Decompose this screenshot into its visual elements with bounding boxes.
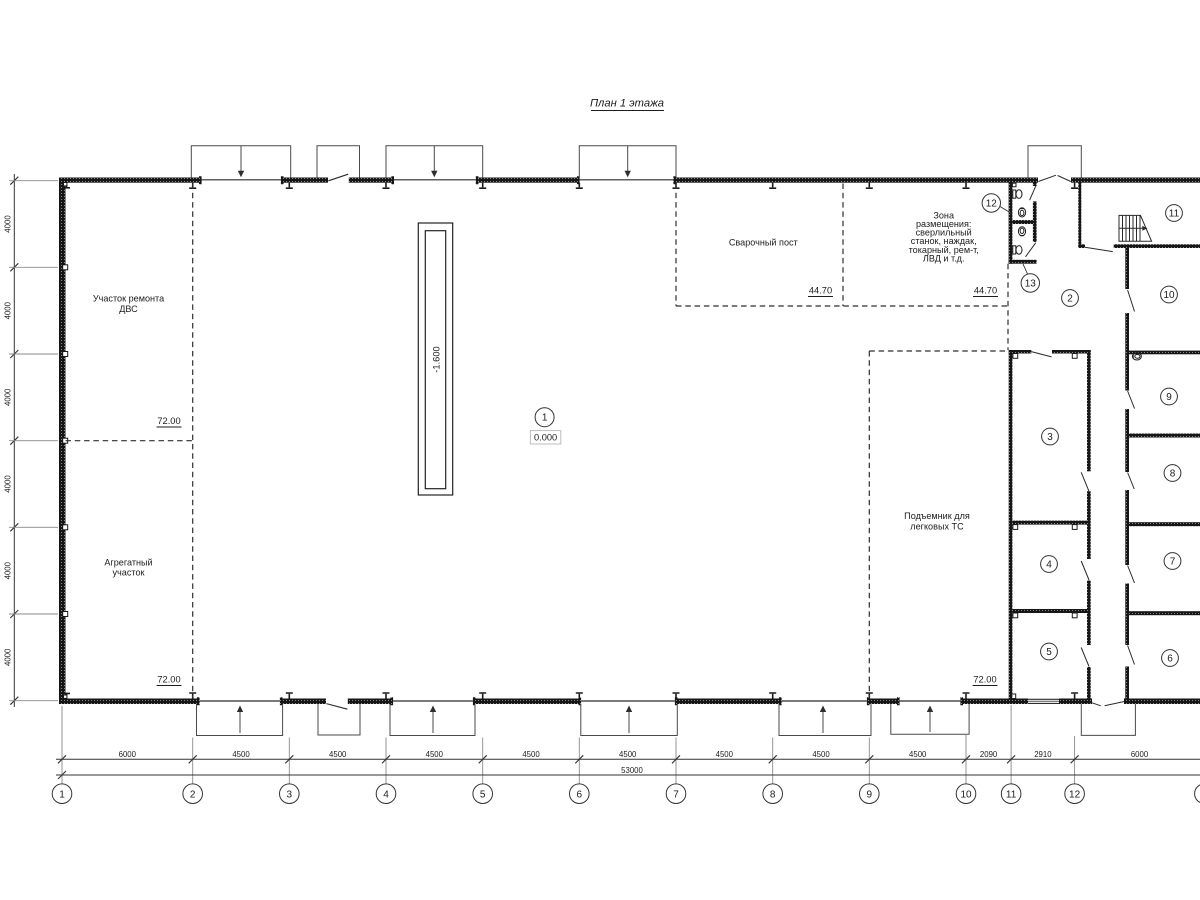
svg-text:11: 11 [1006, 789, 1017, 800]
svg-text:4500: 4500 [716, 750, 734, 759]
svg-text:7: 7 [673, 789, 679, 800]
svg-text:4500: 4500 [426, 750, 444, 759]
svg-text:4: 4 [383, 789, 389, 800]
svg-text:3: 3 [287, 789, 293, 800]
svg-text:4000: 4000 [4, 301, 13, 319]
svg-text:2: 2 [1067, 294, 1073, 305]
svg-text:0.000: 0.000 [534, 433, 557, 443]
svg-text:4500: 4500 [329, 750, 347, 759]
svg-text:2910: 2910 [1034, 750, 1052, 759]
svg-text:72.00: 72.00 [157, 416, 180, 426]
svg-text:1: 1 [542, 413, 548, 424]
svg-text:44.70: 44.70 [809, 286, 832, 296]
svg-text:4000: 4000 [4, 388, 13, 406]
svg-text:5: 5 [1046, 647, 1052, 658]
svg-text:72.00: 72.00 [973, 675, 996, 685]
svg-text:ЛВД и т.д.: ЛВД и т.д. [923, 253, 965, 263]
svg-text:Подъемник для: Подъемник для [904, 511, 970, 521]
svg-text:6000: 6000 [1131, 750, 1149, 759]
svg-text:План 1 этажа: План 1 этажа [590, 98, 664, 110]
svg-text:4000: 4000 [4, 475, 13, 493]
svg-text:4500: 4500 [909, 750, 927, 759]
svg-text:Сварочный пост: Сварочный пост [729, 238, 799, 248]
svg-text:8: 8 [1170, 469, 1176, 480]
svg-text:4: 4 [1046, 560, 1052, 571]
svg-text:Участок ремонта: Участок ремонта [93, 294, 165, 304]
svg-text:-1.600: -1.600 [431, 346, 441, 372]
svg-text:4000: 4000 [4, 215, 13, 233]
svg-text:4500: 4500 [812, 750, 830, 759]
svg-text:Агрегатный: Агрегатный [104, 558, 152, 568]
svg-text:3: 3 [1047, 432, 1053, 443]
svg-text:2: 2 [190, 789, 196, 800]
svg-text:4000: 4000 [4, 561, 13, 579]
svg-text:9: 9 [1166, 392, 1172, 403]
svg-text:72.00: 72.00 [157, 675, 180, 685]
svg-text:4500: 4500 [232, 750, 250, 759]
svg-text:9: 9 [867, 789, 873, 800]
svg-text:11: 11 [1169, 209, 1180, 220]
svg-text:7: 7 [1170, 557, 1176, 568]
svg-text:12: 12 [986, 199, 998, 210]
svg-text:участок: участок [113, 567, 146, 577]
svg-text:4500: 4500 [522, 750, 540, 759]
svg-text:6: 6 [577, 789, 583, 800]
svg-text:8: 8 [770, 789, 776, 800]
svg-text:13: 13 [1025, 279, 1037, 290]
svg-text:2090: 2090 [980, 750, 998, 759]
svg-text:4500: 4500 [619, 750, 637, 759]
svg-text:10: 10 [1163, 290, 1175, 301]
svg-text:6000: 6000 [119, 750, 137, 759]
svg-text:1: 1 [59, 789, 65, 800]
svg-text:легковых ТС: легковых ТС [910, 522, 964, 532]
svg-text:ДВС: ДВС [119, 304, 138, 314]
svg-text:12: 12 [1069, 789, 1081, 800]
svg-text:44.70: 44.70 [974, 286, 997, 296]
svg-text:4000: 4000 [4, 648, 13, 666]
svg-text:53000: 53000 [621, 766, 643, 775]
svg-text:10: 10 [960, 789, 972, 800]
svg-text:5: 5 [480, 789, 486, 800]
svg-text:6: 6 [1167, 654, 1173, 665]
